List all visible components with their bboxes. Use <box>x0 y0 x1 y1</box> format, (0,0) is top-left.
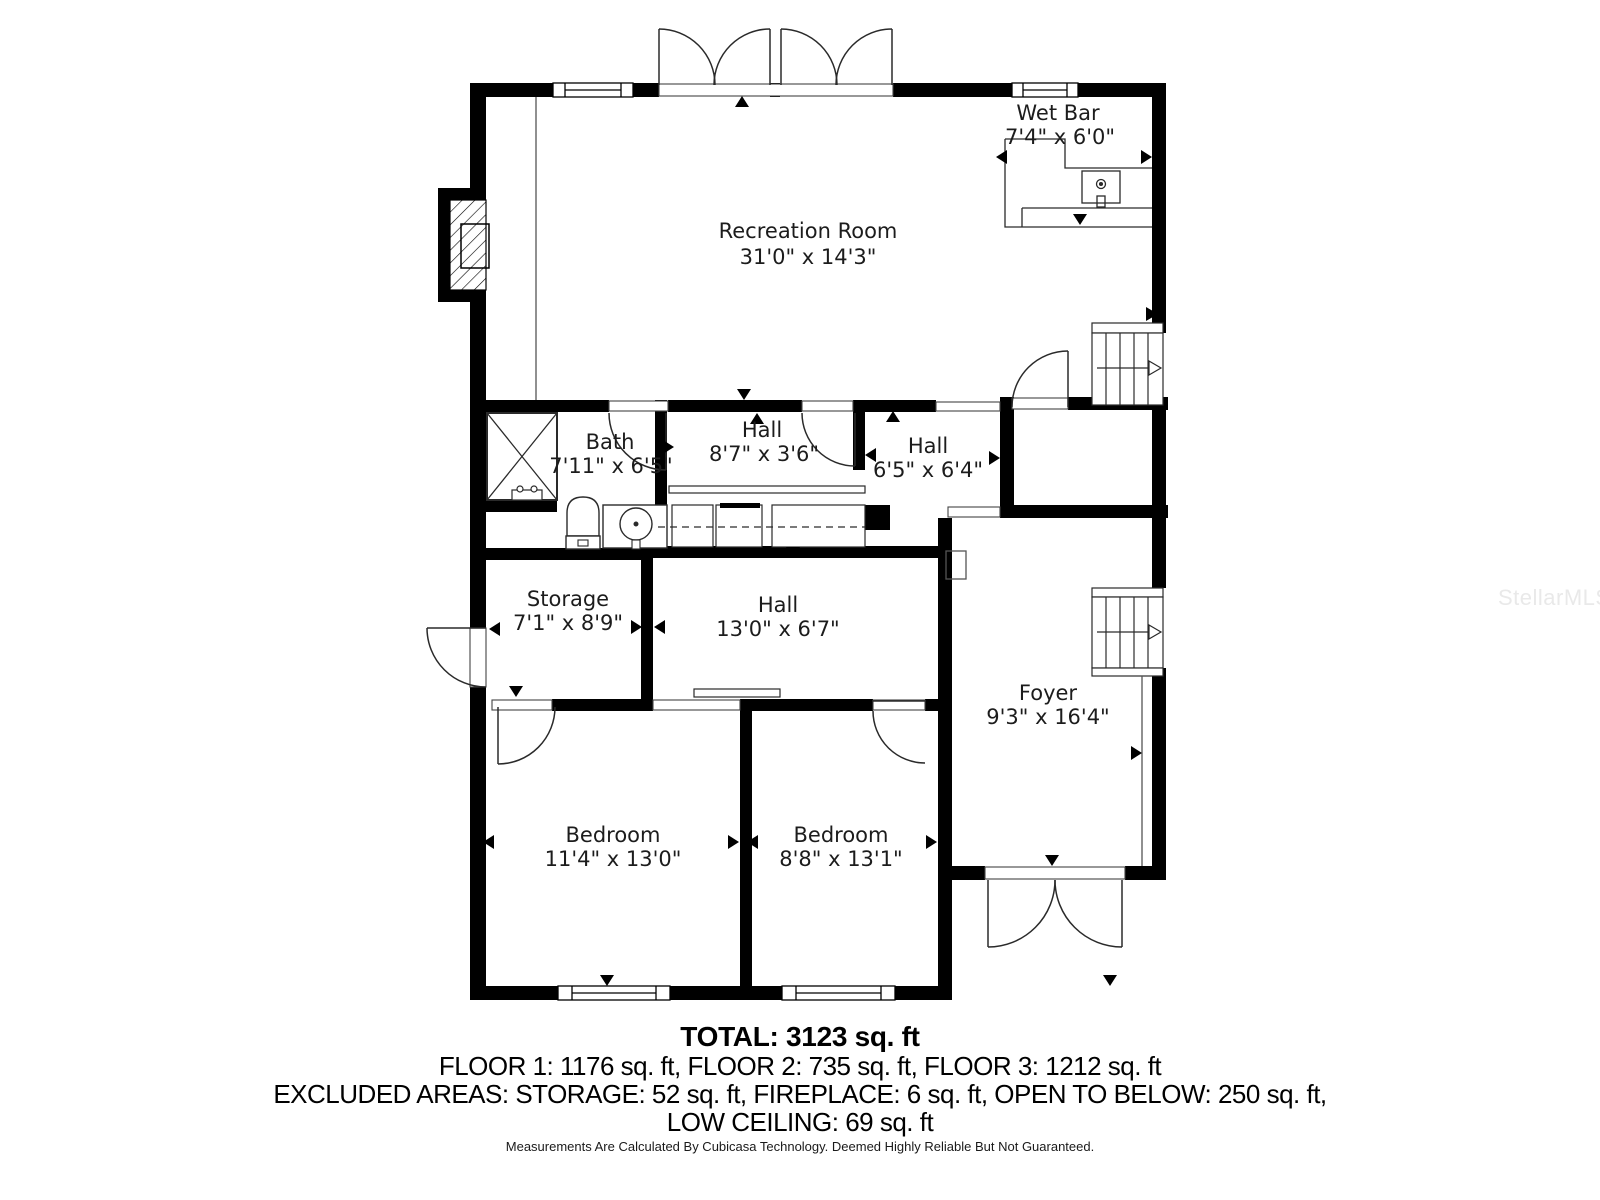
room-label-recreation: Recreation Room <box>719 219 898 243</box>
room-dims-bedroom-right: 8'8" x 13'1" <box>779 847 902 871</box>
sliding-door-icon <box>694 689 780 697</box>
room-dims-wet-bar: 7'4" x 6'0" <box>1005 125 1115 149</box>
room-label-storage: Storage <box>527 587 609 611</box>
disclaimer-text: Measurements Are Calculated By Cubicasa … <box>0 1138 1600 1156</box>
excluded-areas-text: EXCLUDED AREAS: STORAGE: 52 sq. ft, FIRE… <box>0 1080 1600 1108</box>
room-dims-foyer: 9'3" x 16'4" <box>986 705 1109 729</box>
wardrobe-icons <box>658 486 865 547</box>
room-dims-recreation: 31'0" x 14'3" <box>740 245 877 269</box>
window-icon <box>1012 83 1078 97</box>
window-icon <box>553 83 633 97</box>
shower-icon <box>487 413 557 500</box>
room-dims-hall-mid: 6'5" x 6'4" <box>873 458 983 482</box>
stellar-mls-watermark: StellarMLS <box>1498 585 1600 611</box>
toilet-icon <box>566 497 600 549</box>
wet-bar-counter-icon <box>1005 139 1152 227</box>
faucet-icon <box>632 540 640 549</box>
floor-plan-page: Wet Bar 7'4" x 6'0" Recreation Room 31'0… <box>0 0 1600 1200</box>
bath-fixtures <box>487 413 667 549</box>
room-label-hall-mid: Hall <box>908 434 948 458</box>
stairs-lower <box>1092 588 1163 676</box>
sink-vanity-icon <box>603 505 667 549</box>
room-label-hall-lower: Hall <box>758 593 798 617</box>
room-dims-bedroom-left: 11'4" x 13'0" <box>545 847 682 871</box>
fireplace-icon <box>450 200 489 290</box>
area-summary: TOTAL: 3123 sq. ft FLOOR 1: 1176 sq. ft,… <box>0 1022 1600 1156</box>
room-dims-bath: 7'11" x 6'5" <box>549 454 672 478</box>
room-dims-storage: 7'1" x 8'9" <box>513 611 623 635</box>
room-label-bath: Bath <box>586 430 635 454</box>
room-dims-hall-upper: 8'7" x 3'6" <box>709 442 819 466</box>
room-label-hall-upper: Hall <box>742 418 782 442</box>
room-label-foyer: Foyer <box>1019 681 1078 705</box>
structure-lines <box>536 97 1142 866</box>
window-icon <box>782 986 895 1000</box>
french-door-icon <box>659 29 892 85</box>
faucet-icon <box>1097 196 1105 207</box>
door-icon <box>498 707 555 764</box>
door-thresholds <box>470 84 1125 879</box>
room-label-bedroom-right: Bedroom <box>794 823 889 847</box>
floor-plan: Wet Bar 7'4" x 6'0" Recreation Room 31'0… <box>0 0 1600 1200</box>
room-label-wet-bar: Wet Bar <box>1016 101 1100 125</box>
room-label-bedroom-left: Bedroom <box>566 823 661 847</box>
excluded-areas-text-2: LOW CEILING: 69 sq. ft <box>0 1108 1600 1136</box>
french-door-icon <box>988 880 1122 947</box>
window-icon <box>558 986 670 1000</box>
floor-areas-text: FLOOR 1: 1176 sq. ft, FLOOR 2: 735 sq. f… <box>0 1052 1600 1080</box>
room-dims-hall-lower: 13'0" x 6'7" <box>716 617 839 641</box>
total-area-text: TOTAL: 3123 sq. ft <box>0 1022 1600 1052</box>
